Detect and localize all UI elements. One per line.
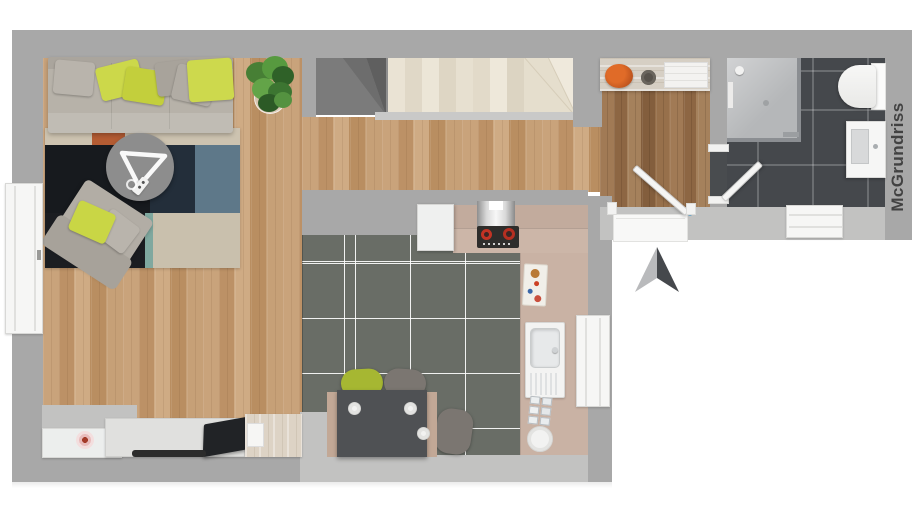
shower-door-handle <box>783 132 799 137</box>
hallway-sideboard <box>600 58 710 91</box>
remote-button <box>141 180 145 184</box>
sofa-front-edge <box>48 113 233 133</box>
north-arrow-icon <box>630 245 684 295</box>
sofa-pillow-gray-left <box>53 59 96 96</box>
sink-drainer <box>530 373 560 395</box>
spice-jar <box>540 417 551 426</box>
shower-glass-right <box>797 58 801 142</box>
washbasin-recess <box>851 129 869 164</box>
table-plate <box>417 427 430 440</box>
window-frame-line <box>585 318 587 406</box>
food-blue-dot <box>528 289 533 294</box>
sofa-pillow-green-3 <box>187 57 235 102</box>
table-plate <box>404 402 417 415</box>
bathroom-door-gap <box>710 152 727 196</box>
wall-kitchen-top <box>302 190 418 235</box>
spice-jar <box>542 397 553 406</box>
toilet-bowl <box>838 65 876 108</box>
table-ring-decor <box>126 179 137 190</box>
dark-bowl <box>641 70 656 85</box>
entrance-step <box>613 214 688 242</box>
food-red-cluster <box>534 295 541 302</box>
washbasin-cabinet <box>846 121 886 178</box>
spice-jar <box>541 407 552 416</box>
spice-jar <box>530 396 541 405</box>
food-red-dot <box>534 281 539 286</box>
spice-set <box>528 396 557 427</box>
soundbar <box>132 450 206 457</box>
white-tray <box>664 62 708 88</box>
extractor-hood <box>477 201 515 229</box>
corner-sofa <box>48 57 233 133</box>
spice-jar <box>529 406 540 415</box>
toilet <box>838 63 886 110</box>
window-handle <box>37 250 41 260</box>
burner-red-2 <box>503 228 515 240</box>
corridor-floor <box>302 117 602 192</box>
rug-patch-steelblue <box>195 145 240 213</box>
hood-chimney <box>489 201 503 210</box>
bathroom-window <box>786 205 843 238</box>
cooktop <box>477 226 519 248</box>
window-frame-line <box>14 186 16 331</box>
corner-shower <box>727 58 801 142</box>
counter-plate <box>527 426 553 452</box>
window-frame-line <box>599 318 601 406</box>
window-frame-line <box>789 226 842 228</box>
wall-stairs-left <box>302 57 316 117</box>
cooktop-controls <box>483 243 513 245</box>
wall-bathroom-left-upper <box>710 58 727 152</box>
shower-fixture <box>728 82 733 108</box>
shower-head <box>735 66 744 75</box>
wall-bottom-living <box>12 455 300 482</box>
wall-top <box>12 30 912 58</box>
table-top <box>337 390 427 457</box>
living-room-window <box>5 183 43 334</box>
wall-bottom-kitchen <box>300 455 612 482</box>
wall-bottom-shadow <box>12 482 612 488</box>
floor-plan: McGrundriss <box>0 0 924 520</box>
cutting-board <box>522 263 548 306</box>
washbasin-faucet <box>873 144 878 149</box>
kitchen-sink <box>525 322 565 398</box>
sink-faucet <box>552 347 558 353</box>
dining-table <box>327 390 437 457</box>
table-plate <box>348 402 361 415</box>
flower-decor <box>76 431 94 449</box>
wall-stairs-right <box>573 57 602 127</box>
kitchen-tall-cabinet <box>417 204 454 251</box>
cabinet-white-box <box>247 423 264 447</box>
kitchen-backsplash <box>453 205 588 229</box>
plant-leaf-7 <box>274 92 292 108</box>
shower-glass-bottom <box>727 138 801 142</box>
shower-drain <box>763 100 769 106</box>
food-croissant <box>530 269 539 278</box>
burner-red-1 <box>481 229 492 240</box>
orange-bowl <box>605 64 633 88</box>
kitchen-counter-top <box>453 228 588 253</box>
entrance-door-frame-left <box>607 202 617 215</box>
watermark-text: McGrundriss <box>888 102 908 211</box>
staircase <box>302 57 578 120</box>
step-line <box>616 218 685 219</box>
kitchen-window <box>576 315 610 407</box>
entrance-door-frame-right <box>686 203 696 215</box>
window-frame-line <box>789 214 842 216</box>
potted-plant <box>242 56 292 118</box>
spice-jar <box>528 416 539 425</box>
bathroom-door-frame-top <box>708 144 729 152</box>
remote-button <box>137 185 141 189</box>
wall-stub-kitchen-bottom <box>300 412 330 457</box>
window-frame-line <box>34 186 36 331</box>
whitewash-cabinet <box>245 414 302 457</box>
